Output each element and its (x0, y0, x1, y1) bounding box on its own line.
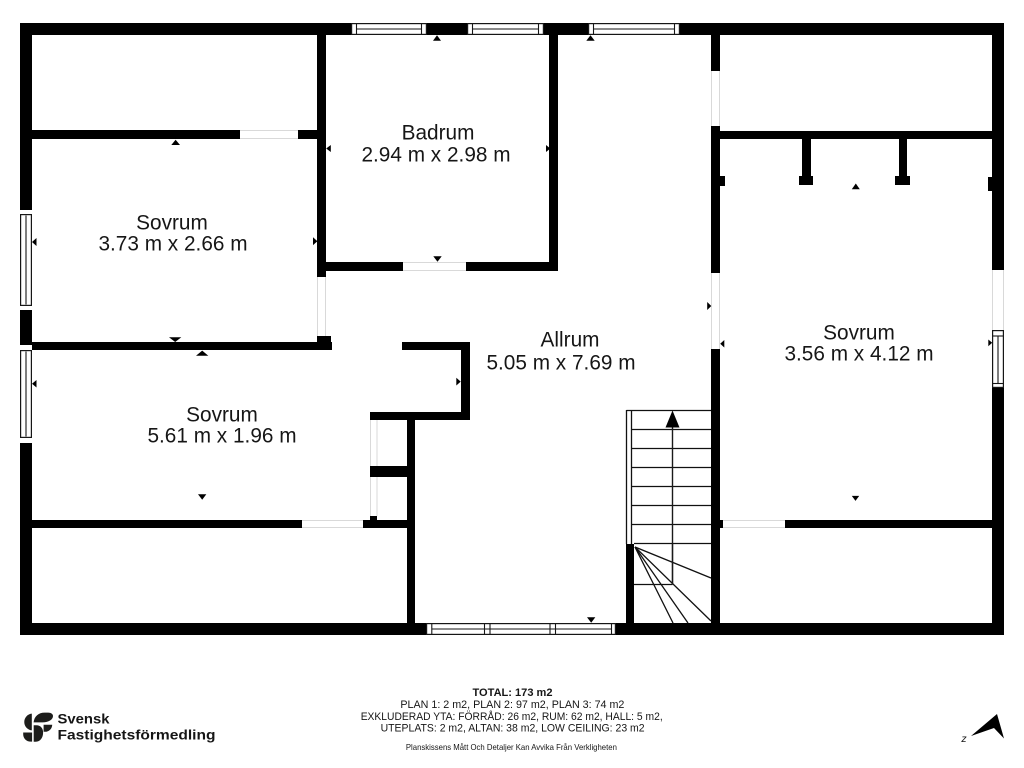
svg-text:5.61 m x 1.96 m: 5.61 m x 1.96 m (147, 425, 296, 448)
svg-text:PLAN 1: 2 m2, PLAN 2: 97 m2, P: PLAN 1: 2 m2, PLAN 2: 97 m2, PLAN 3: 74 … (400, 699, 624, 711)
svg-text:UTEPLATS: 2 m2, ALTAN: 38 m2,: UTEPLATS: 2 m2, ALTAN: 38 m2, LOW CEILIN… (381, 723, 645, 735)
svg-text:3.73 m x 2.66 m: 3.73 m x 2.66 m (98, 233, 247, 256)
svg-text:z: z (960, 733, 967, 745)
svg-text:Fastighetsförmedling: Fastighetsförmedling (58, 727, 216, 743)
svg-text:Allrum: Allrum (541, 329, 600, 352)
svg-text:Sovrum: Sovrum (136, 212, 208, 235)
svg-text:Badrum: Badrum (402, 122, 475, 145)
svg-text:3.56 m x 4.12 m: 3.56 m x 4.12 m (784, 343, 933, 366)
svg-text:Svensk: Svensk (58, 711, 110, 727)
svg-text:EXKLUDERAD YTA: FÖRRÅD: 26 m2,: EXKLUDERAD YTA: FÖRRÅD: 26 m2, RUM: 62 m… (361, 710, 663, 723)
svg-text:Sovrum: Sovrum (186, 404, 258, 427)
svg-text:2.94 m x 2.98 m: 2.94 m x 2.98 m (361, 144, 510, 167)
svg-text:TOTAL: 173 m2: TOTAL: 173 m2 (473, 687, 553, 699)
svg-text:Planskissens Mått Och Detaljer: Planskissens Mått Och Detaljer Kan Avvik… (406, 742, 617, 752)
svg-text:5.05 m x 7.69 m: 5.05 m x 7.69 m (486, 352, 635, 375)
svg-text:Sovrum: Sovrum (823, 322, 895, 345)
